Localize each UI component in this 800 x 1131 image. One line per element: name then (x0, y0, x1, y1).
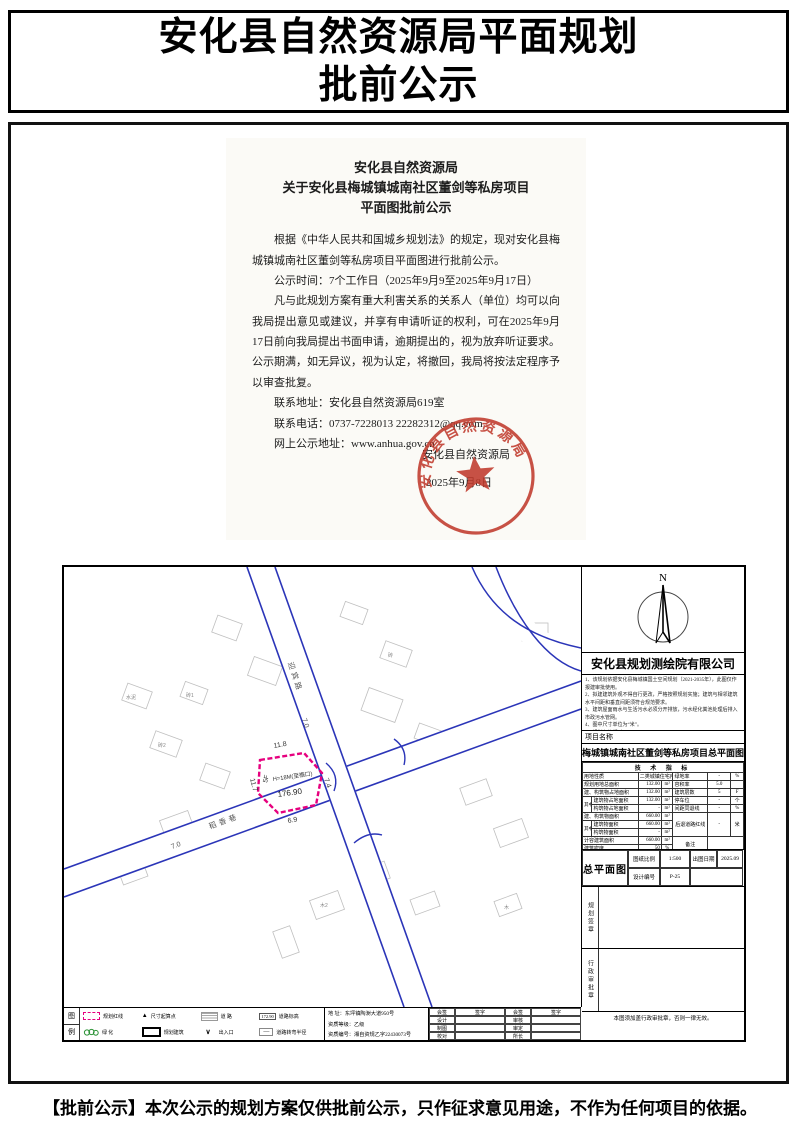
tech-cell: % (731, 773, 744, 781)
legend-item-elevation: 172.90 道路标高 (256, 1008, 324, 1024)
sign-cell (455, 1032, 505, 1040)
plot-floors-label: 5F (262, 774, 271, 783)
legend-item-entrance: ∨ 出入口 (198, 1024, 257, 1040)
tech-cell: - (638, 805, 661, 813)
plan-bottom-strip: 图 例 规划红线 ▲ 尺寸起算点 道 路 (64, 1007, 581, 1040)
tech-cell: 建、构筑物占地面积 (583, 789, 639, 797)
tech-cell: m² (661, 781, 673, 789)
tech-cell: 米 (731, 813, 744, 837)
legend-item-road: 道 路 (198, 1008, 257, 1024)
approval-seal-box: 行政审批章 (582, 949, 744, 1012)
date-label: 出图日期 (690, 850, 717, 868)
sign-cell: 审核 (505, 1016, 531, 1024)
tech-cell: 建筑层数 (673, 789, 708, 797)
sign-cell: 所长 (505, 1032, 531, 1040)
bldg-label: 水泥 (126, 694, 136, 701)
tech-cell: 660.00 (638, 821, 661, 829)
plan-notes: 1、该规划依据安化县梅城镇国土空间规划（2021-2035年），此图仅作报建审批… (582, 675, 744, 731)
design-no-value: P-25 (660, 868, 690, 886)
tech-cell (731, 781, 744, 789)
sign-cell (531, 1024, 581, 1032)
sign-cell: 会签 (505, 1008, 531, 1016)
bldg-label: 砖1 (186, 692, 194, 699)
office-address: 地 址：东坪镇陶澍大道950号 (328, 1009, 425, 1020)
notice-paragraph-period: 公示时间：7个工作日（2025年9月9至2025年9月17日） (252, 271, 560, 291)
plot-dim-top: 11.8 (273, 741, 287, 750)
design-no-label: 设计编号 (628, 868, 660, 886)
legend-label: 道路转弯半径 (276, 1029, 306, 1036)
legend-label: 道路标高 (279, 1013, 299, 1020)
sign-cell: 签字 (455, 1008, 505, 1016)
tech-cell: 构筑物面积 (592, 829, 638, 837)
plan-map: 5F H=18M(至檐口) 176.90 11.8 6.9 11.7 7.4 迎… (64, 567, 581, 1007)
planning-seal-box: 规划签章 (582, 887, 744, 949)
tech-cell: 其中 (583, 797, 592, 813)
office-grade: 资质等级：乙级 (328, 1020, 425, 1031)
legend-title-bottom: 例 (64, 1025, 79, 1041)
notice-page: { "page": { "title_line1": "安化县自然资源局平面规划… (0, 0, 800, 1131)
tech-cell: 建筑物面积 (592, 821, 638, 829)
tech-cell: m² (661, 789, 673, 797)
scale-value: 1:500 (660, 850, 690, 868)
tech-cell: - (708, 773, 731, 781)
validity-note: 本图须加盖行政审批章，否则一律无效。 (582, 1012, 744, 1027)
tech-cell: 构筑物占地面积 (592, 805, 638, 813)
bldg-label: 木 (504, 904, 509, 911)
bldg-label: 砖2 (158, 742, 166, 749)
tech-cell: 132.00 (638, 789, 661, 797)
tech-cell: 计容建筑面积 (583, 837, 639, 845)
tech-cell: 停车位 (673, 797, 708, 805)
plan-note-3: 3、建筑屋面雨水与生活污水必须分开排放，污水经化粪池处理后排入市政污水管网。 (585, 707, 741, 722)
title-block-empty (690, 868, 743, 886)
sign-cell: 签字 (531, 1008, 581, 1016)
notice-document: 安化县自然资源局 关于安化县梅城镇城南社区董剑等私房项目 平面图批前公示 根据《… (226, 138, 586, 540)
north-label: N (659, 572, 667, 584)
triangle-symbol-icon: ▲ (142, 1013, 148, 1019)
turn-radius-symbol-icon: — (259, 1028, 273, 1036)
sign-cell (531, 1032, 581, 1040)
planned-building-symbol-icon (142, 1027, 161, 1037)
tech-cell: 5 (708, 789, 731, 797)
plot-dim-bottom: 6.9 (287, 816, 298, 825)
seal-star-icon (455, 454, 497, 493)
tech-cell: 其中 (583, 821, 592, 837)
tech-cell: 132.00 (638, 781, 661, 789)
planning-seal-label: 规划签章 (582, 887, 599, 948)
signature-table: 会签 签字 会签 签字 设计 审核 制图 审定 校对 所长 (429, 1008, 581, 1040)
footer-disclaimer: 【批前公示】本次公示的规划方案仅供批前公示，只作征求意见用途，不作为任何项目的依… (0, 1094, 800, 1119)
sign-cell (531, 1016, 581, 1024)
tech-cell: 个 (731, 797, 744, 805)
entrance-symbol-icon: ∨ (201, 1028, 216, 1036)
tech-cell: m² (661, 837, 673, 845)
plan-note-2: 2、拟建建筑外观不得自行更改，严格按照规划实施；建筑与相邻建筑水平间距和垂直间距… (585, 692, 741, 707)
legend-title-top: 图 (64, 1008, 79, 1025)
sign-cell: 制图 (429, 1024, 455, 1032)
legend-label: 规划红线 (103, 1013, 123, 1020)
north-arrow-graphic: N (603, 569, 723, 651)
office-cert: 资质编号：湘自资规乙字22430073号 (328, 1030, 425, 1041)
sign-cell: 设计 (429, 1016, 455, 1024)
tech-cell: 建筑物占地面积 (592, 797, 638, 805)
main-frame: 安化县自然资源局 关于安化县梅城镇城南社区董剑等私房项目 平面图批前公示 根据《… (8, 122, 789, 1084)
tech-cell: - (638, 829, 661, 837)
tech-cell: m² (661, 805, 673, 813)
legend-label: 规划建筑 (164, 1029, 184, 1036)
page-title-line2: 批前公示 (11, 62, 786, 110)
map-graphic: 5F H=18M(至檐口) 176.90 11.8 6.9 11.7 7.4 迎… (64, 567, 581, 1007)
tech-cell: 用地性质 (583, 773, 639, 781)
approval-seal-space (599, 949, 744, 1011)
approval-seal-label: 行政审批章 (582, 949, 599, 1011)
sign-cell: 校对 (429, 1032, 455, 1040)
tech-cell: 660.00 (638, 813, 661, 821)
drawing-name: 总平面图 (582, 850, 628, 886)
bldg-label: 砖 (388, 652, 393, 659)
tech-cell: 5.0 (708, 781, 731, 789)
legend-label: 尺寸起算点 (151, 1013, 176, 1020)
road-symbol-icon (201, 1012, 218, 1021)
tech-cell: m² (661, 829, 673, 837)
plan-note-4: 4、图中尺寸单位为“米”。 (585, 722, 741, 730)
plan-note-1: 1、该规划依据安化县梅城镇国土空间规划（2021-2035年），此图仅作报建审批… (585, 677, 741, 692)
elevation-symbol-icon: 172.90 (259, 1013, 275, 1020)
notice-title: 安化县自然资源局 关于安化县梅城镇城南社区董剑等私房项目 平面图批前公示 (252, 158, 560, 218)
tech-cell: % (731, 805, 744, 813)
notice-title-line2: 关于安化县梅城镇城南社区董剑等私房项目 (252, 178, 560, 198)
sign-cell: 会签 (429, 1008, 455, 1016)
sign-cell (455, 1024, 505, 1032)
tech-cell: 备注 (673, 837, 708, 851)
plot-dim-left: 11.7 (248, 778, 258, 793)
office-info: 地 址：东坪镇陶澍大道950号 资质等级：乙级 资质编号：湘自资规乙字22430… (325, 1008, 429, 1040)
legend-title: 图 例 (64, 1008, 80, 1040)
tech-cell: - (708, 805, 731, 813)
notice-paragraph-rights: 凡与此规划方案有重大利害关系的关系人（单位）均可以向我局提出意见或建议，并享有申… (252, 291, 560, 393)
site-plan-sheet: 5F H=18M(至檐口) 176.90 11.8 6.9 11.7 7.4 迎… (62, 565, 746, 1042)
tech-header: 技 术 指 标 (583, 763, 744, 773)
redline-symbol-icon (83, 1012, 100, 1020)
page-title-line1: 安化县自然资源局平面规划 (11, 14, 786, 62)
scale-label: 图纸比例 (628, 850, 660, 868)
project-name-label: 项目名称 (582, 731, 744, 744)
tech-cell: 容积率 (673, 781, 708, 789)
page-title-box: 安化县自然资源局平面规划 批前公示 (8, 10, 789, 113)
legend: 图 例 规划红线 ▲ 尺寸起算点 道 路 (64, 1008, 325, 1040)
tech-cell: 建、构筑物面积 (583, 813, 639, 821)
tech-cell: 间距同退线 (673, 805, 708, 813)
tech-cell: 二类城镇住宅用地 (638, 773, 673, 781)
notice-title-line1: 安化县自然资源局 (252, 158, 560, 178)
notice-title-line3: 平面图批前公示 (252, 198, 560, 218)
tech-cell: F (731, 789, 744, 797)
tech-cell: 后退道路红线 (673, 813, 708, 837)
planning-seal-space (599, 887, 744, 948)
tech-cell: 132.00 (638, 797, 661, 805)
legend-item-planned-building: 规划建筑 (139, 1024, 198, 1040)
tech-cell: m² (661, 813, 673, 821)
legend-label: 出入口 (219, 1029, 234, 1036)
legend-item-redline: 规划红线 (80, 1008, 139, 1024)
legend-item-datum: ▲ 尺寸起算点 (139, 1008, 198, 1024)
tech-cell: m² (661, 797, 673, 805)
project-name: 梅城镇城南社区董剑等私房项目总平面图 (582, 744, 744, 762)
tech-cell: 规划用地总面积 (583, 781, 639, 789)
surveyor-company: 安化县规划测绘院有限公司 (582, 653, 744, 675)
tech-cell: - (708, 797, 731, 805)
seal-graphic: 安化县自然资源局 (408, 408, 544, 544)
plan-right-panel: N 安化县规划测绘院有限公司 1、该规划依据安化县梅城镇国土空间规划（2021-… (581, 567, 744, 1007)
title-block: 总平面图 图纸比例 1:500 出图日期 2025.09 设计编号 P-25 (582, 850, 744, 887)
date-value: 2025.09 (717, 850, 743, 868)
tech-cell (708, 837, 744, 851)
bldg-label: 木2 (320, 902, 328, 909)
sign-cell: 审定 (505, 1024, 531, 1032)
tech-cell: m² (661, 821, 673, 829)
green-symbol-icon (83, 1028, 99, 1037)
legend-label: 绿 化 (102, 1029, 113, 1036)
legend-item-green: 绿 化 (80, 1024, 139, 1040)
official-seal: 安化县自然资源局 (408, 408, 544, 544)
north-arrow: N (582, 567, 744, 653)
legend-label: 道 路 (221, 1013, 232, 1020)
legend-item-turn-radius: — 道路转弯半径 (256, 1024, 324, 1040)
tech-cell: 660.00 (638, 837, 661, 845)
tech-cell: 绿地率 (673, 773, 708, 781)
sign-cell (455, 1016, 505, 1024)
tech-cell: - (708, 813, 731, 837)
tech-indicator-table: 技 术 指 标 用地性质 二类城镇住宅用地 绿地率 - % 规划用地总面积 13… (582, 762, 744, 850)
notice-paragraph-basis: 根据《中华人民共和国城乡规划法》的规定，现对安化县梅城镇城南社区董剑等私房项目平… (252, 230, 560, 271)
